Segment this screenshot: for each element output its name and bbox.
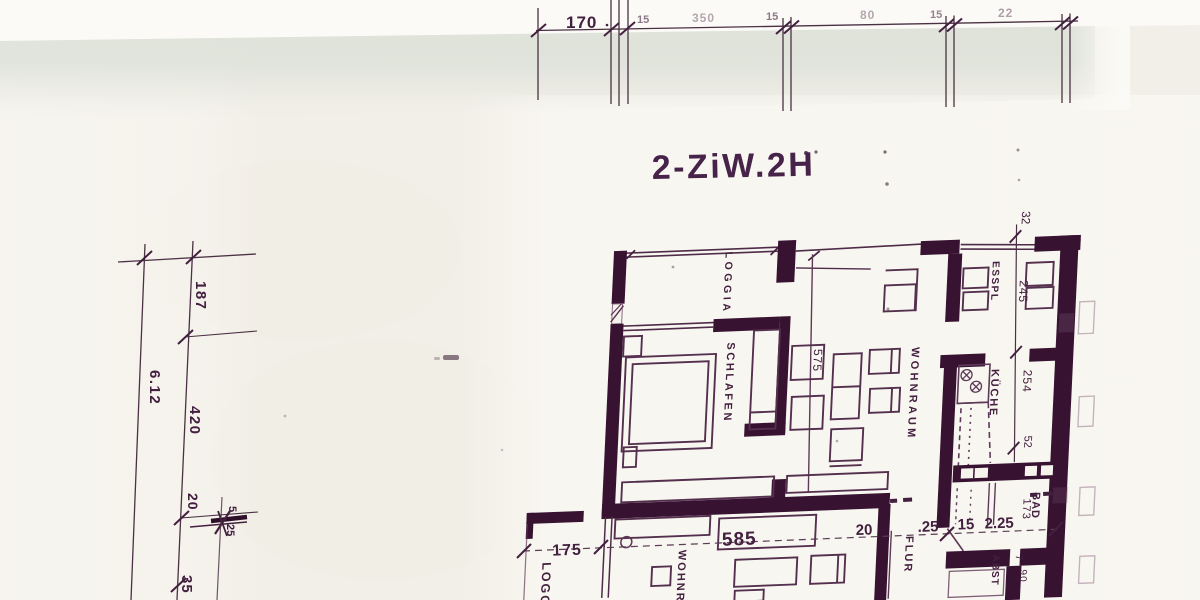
svg-text:KÜCHE: KÜCHE: [987, 369, 1002, 418]
svg-text:7: 7: [1013, 555, 1024, 561]
svg-text:ABST: ABST: [989, 554, 1001, 586]
svg-text:2.25: 2.25: [984, 515, 1014, 533]
svg-text:15: 15: [930, 9, 942, 21]
svg-text:15: 15: [637, 14, 649, 26]
svg-text:170: 170: [566, 13, 597, 32]
svg-text:.25: .25: [917, 518, 938, 536]
svg-text:32: 32: [1019, 211, 1034, 225]
svg-text:ESSPL: ESSPL: [988, 261, 1001, 302]
svg-text:254: 254: [1020, 369, 1035, 393]
svg-text:245: 245: [1016, 280, 1031, 304]
svg-text:175: 175: [552, 542, 582, 560]
svg-text:15: 15: [766, 11, 778, 23]
svg-text:187: 187: [192, 281, 209, 311]
svg-text:80: 80: [860, 8, 875, 22]
svg-text:575: 575: [810, 349, 825, 373]
svg-text:25: 25: [224, 524, 236, 536]
svg-text:5: 5: [226, 506, 238, 512]
svg-text:6.12: 6.12: [146, 370, 163, 405]
svg-text:20: 20: [185, 493, 201, 511]
svg-text:90: 90: [1017, 569, 1029, 583]
svg-text:20: 20: [855, 521, 872, 539]
svg-text:15: 15: [957, 516, 974, 534]
svg-text:FLUR: FLUR: [901, 536, 915, 574]
svg-text:420: 420: [186, 406, 203, 436]
svg-text:WOHNR: WOHNR: [673, 550, 687, 600]
svg-text:173: 173: [1020, 498, 1033, 520]
svg-text:52: 52: [1021, 435, 1034, 448]
svg-text:2-ZiW.2H: 2-ZiW.2H: [651, 146, 815, 187]
svg-text:585: 585: [722, 529, 757, 551]
svg-text:22: 22: [998, 6, 1013, 20]
svg-text:350: 350: [692, 11, 715, 25]
svg-text:35: 35: [178, 575, 195, 594]
